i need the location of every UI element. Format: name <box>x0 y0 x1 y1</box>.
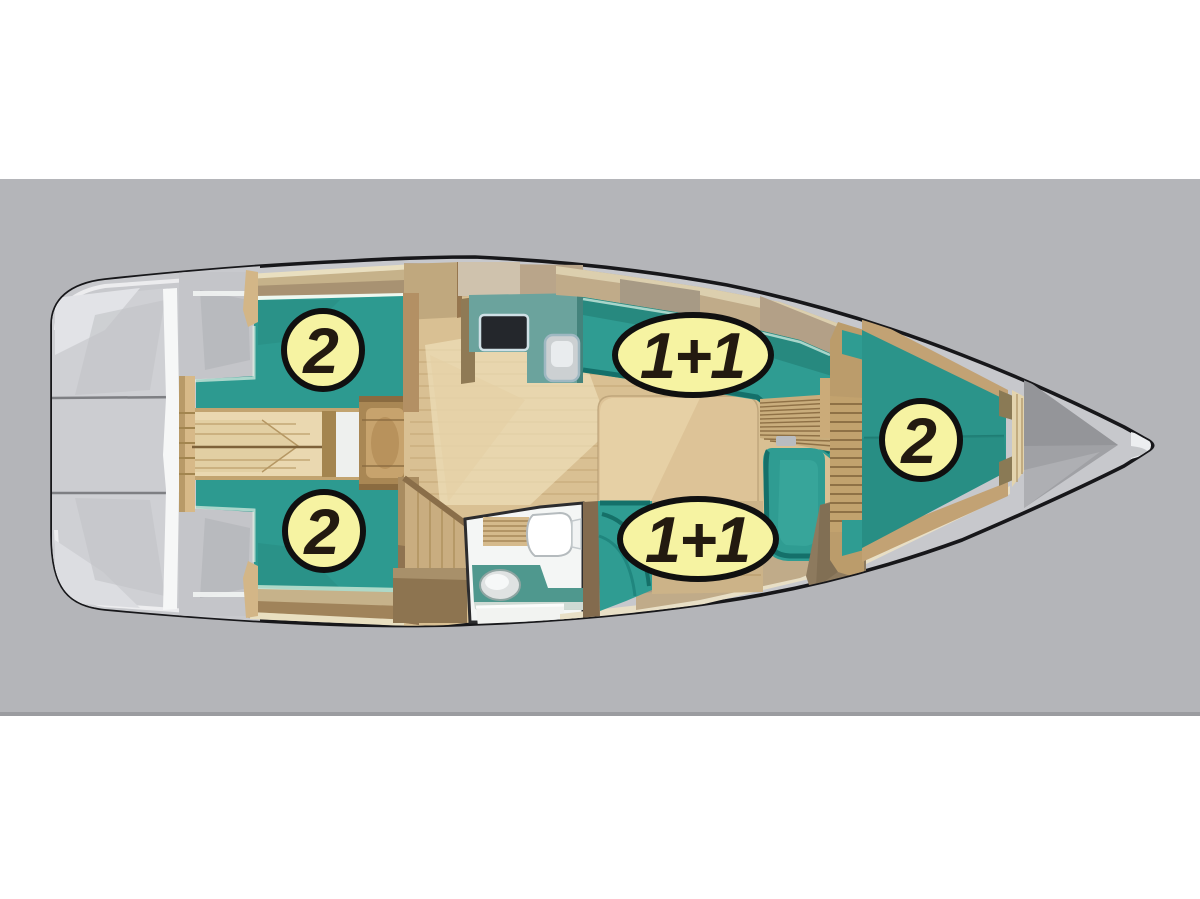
svg-text:2: 2 <box>302 315 339 387</box>
svg-text:2: 2 <box>303 496 340 568</box>
svg-text:1+1: 1+1 <box>645 503 749 576</box>
svg-text:1+1: 1+1 <box>640 319 744 392</box>
svg-text:2: 2 <box>900 405 937 477</box>
